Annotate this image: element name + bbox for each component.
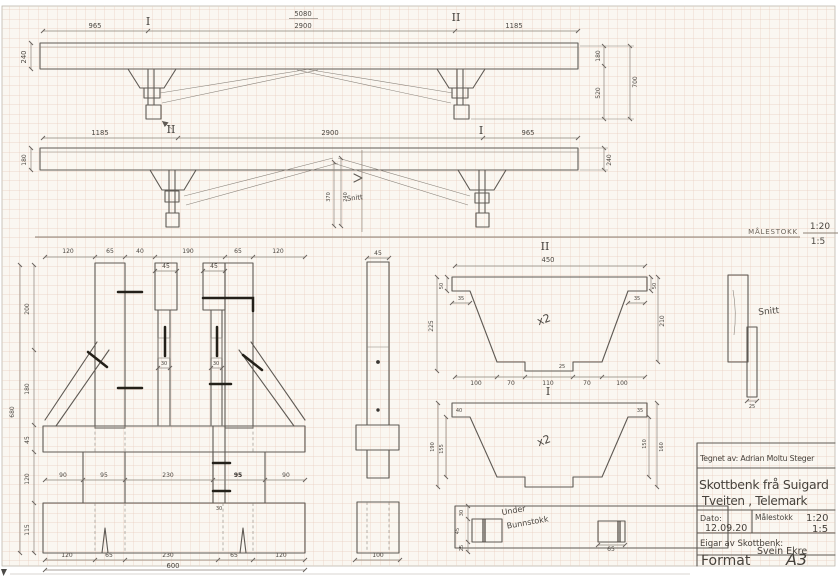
dim-label: 150 [642, 439, 648, 449]
section-marker: I [546, 385, 550, 398]
dim-label: 370 [326, 192, 332, 202]
dim-label: 45 [455, 528, 461, 534]
dim-label: 35 [458, 296, 464, 302]
dim-label: 200 [24, 303, 31, 315]
dim-label: 1185 [91, 129, 108, 137]
dim-label: 965 [89, 22, 102, 30]
dim-label: 600 [167, 562, 180, 570]
scale-label: Målestokk [755, 513, 794, 522]
dim-label: 25 [559, 364, 565, 370]
dim-label: 180 [24, 383, 31, 395]
scale-value: 1:20 [806, 513, 828, 524]
dim-label: 30 [161, 361, 167, 367]
dim-label: 65 [106, 248, 114, 255]
dim-label: 45 [374, 250, 382, 257]
dim-label: 30 [216, 506, 222, 512]
dim-label: 520 [595, 87, 602, 99]
dim-label: 40 [136, 248, 144, 255]
snitt-annotation: Snitt [346, 193, 363, 203]
dim-label: 2900 [294, 22, 311, 30]
dim-label: 120 [275, 552, 287, 559]
dim-label: 100 [470, 380, 482, 387]
bolt-hole [376, 360, 380, 364]
dim-label: 30 [213, 361, 219, 367]
dim-label: 230 [162, 472, 174, 479]
dim-label: 240 [20, 51, 28, 64]
dim-label: 5080 [294, 10, 311, 18]
section-marker: I [146, 15, 150, 28]
dim-label: 65 [607, 546, 615, 553]
dim-label: 25 [459, 545, 465, 551]
dim-label: 160 [659, 442, 665, 452]
dim-label: 95 [234, 472, 242, 479]
drawing-title: Skottbenk frå Suigard [699, 477, 829, 492]
dim-label: 50 [652, 283, 658, 289]
date-label: Dato: [700, 514, 722, 523]
dim-label: 90 [282, 472, 290, 479]
dim-label: 45 [162, 263, 170, 270]
scale-note-label: MÅLESTOKK [748, 227, 798, 236]
dim-label: 190 [430, 442, 436, 452]
scale-value: 1:5 [812, 524, 828, 535]
nail-band [617, 521, 621, 542]
dim-label: 45 [24, 436, 31, 444]
dim-label: 700 [632, 76, 639, 88]
dim-label: 120 [24, 473, 31, 485]
dim-label: 680 [9, 406, 16, 418]
dim-label: 70 [583, 380, 591, 387]
dim-label: 35 [634, 296, 640, 302]
dim-label: 50 [439, 283, 445, 289]
date-value: 12.09.20 [705, 523, 747, 534]
dim-label: 155 [439, 444, 445, 454]
bolt-hole [376, 408, 379, 411]
section-marker: II [541, 240, 550, 253]
dim-label: 965 [522, 129, 535, 137]
dim-label: 120 [62, 248, 74, 255]
dim-label: 65 [230, 552, 238, 559]
dim-label: 120 [272, 248, 284, 255]
dim-label: 100 [372, 552, 384, 559]
drawing-title: Tveiten , Telemark [701, 494, 808, 508]
scale-note-value: 1:20 [810, 222, 830, 232]
dim-label: 70 [507, 380, 515, 387]
dim-label: 230 [162, 552, 174, 559]
dim-label: 450 [542, 256, 555, 264]
dim-label: 1185 [505, 22, 522, 30]
section-marker: II [167, 123, 176, 136]
skottbenk-drawing: 965 5080 2900 1185 240 180 520 700 I II … [0, 0, 840, 581]
dim-label: 115 [24, 524, 31, 536]
section-marker: II [452, 11, 461, 24]
dim-label: 65 [234, 248, 242, 255]
snitt-annotation: Snitt [758, 306, 780, 318]
scanned-drawing-sheet: 965 5080 2900 1185 240 180 520 700 I II … [0, 0, 840, 581]
dim-label: 95 [100, 472, 108, 479]
scale-note-value: 1:5 [811, 237, 825, 247]
dim-label: 90 [59, 472, 67, 479]
format-label: Format [701, 553, 751, 569]
nail-band [482, 519, 486, 542]
section-marker: I [479, 124, 483, 137]
dim-label: 35 [637, 408, 643, 414]
dim-label: 40 [456, 408, 462, 414]
dim-label: 190 [182, 248, 194, 255]
dim-label: 100 [616, 380, 628, 387]
drawn-by: Tegnet av: Adrian Moltu Steger [699, 454, 815, 463]
dim-label: 180 [21, 154, 28, 166]
dim-label: 225 [428, 320, 435, 332]
dim-label: 2900 [321, 129, 338, 137]
corner-mark [1, 569, 7, 576]
dim-label: 180 [595, 50, 602, 62]
format-value: A3 [785, 550, 807, 569]
dim-label: 210 [659, 315, 666, 327]
dim-label: 65 [105, 552, 113, 559]
dim-label: 240 [606, 154, 613, 166]
dim-label: 25 [749, 404, 755, 410]
dim-label: 30 [459, 510, 465, 516]
dim-label: 120 [61, 552, 73, 559]
dim-label: 45 [210, 263, 218, 270]
